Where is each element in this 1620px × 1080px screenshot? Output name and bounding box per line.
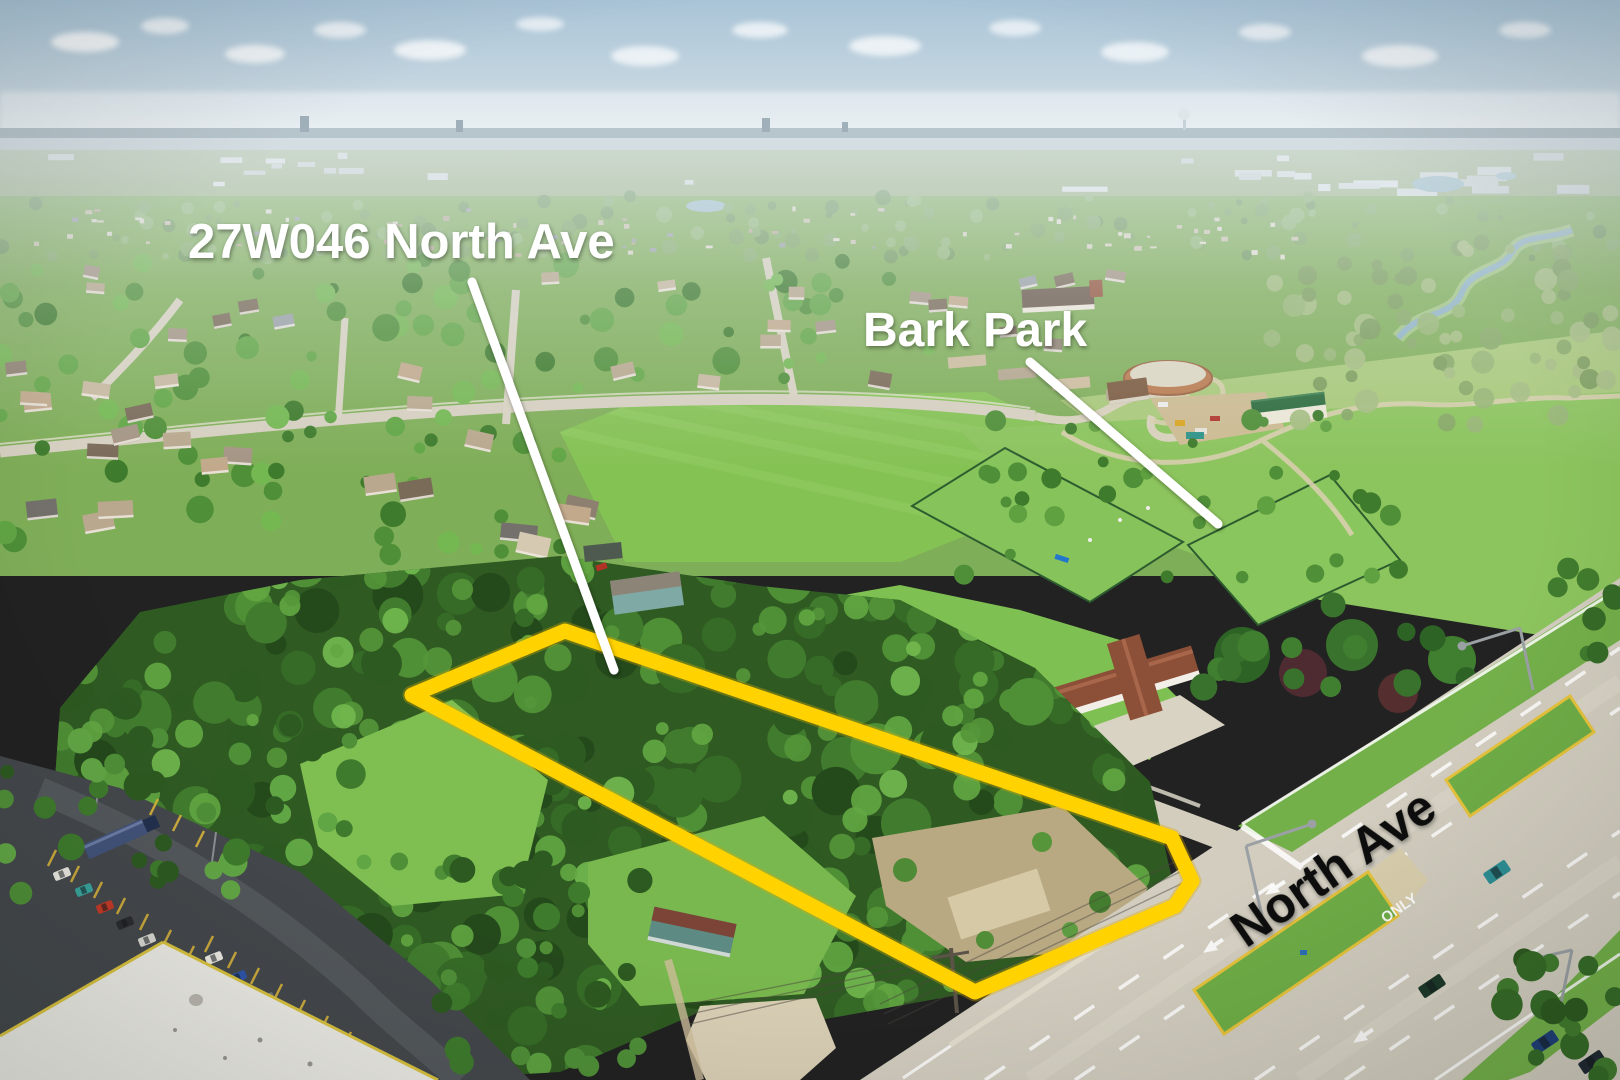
vignette [0, 0, 1620, 1080]
bark-park-label: Bark Park [863, 304, 1087, 357]
aerial-photo-canvas: ONLY [0, 0, 1620, 1080]
aerial-photo: ONLY [0, 0, 1620, 1080]
property-address-label: 27W046 North Ave [188, 215, 615, 269]
